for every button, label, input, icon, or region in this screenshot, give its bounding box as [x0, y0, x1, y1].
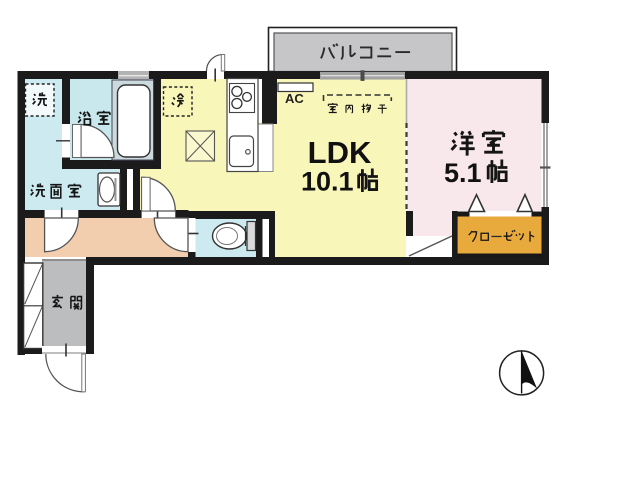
svg-text:LDK: LDK	[308, 135, 372, 170]
svg-text:10.1: 10.1	[301, 167, 354, 197]
svg-text:AC: AC	[285, 91, 304, 106]
svg-text:5.1: 5.1	[444, 158, 482, 188]
